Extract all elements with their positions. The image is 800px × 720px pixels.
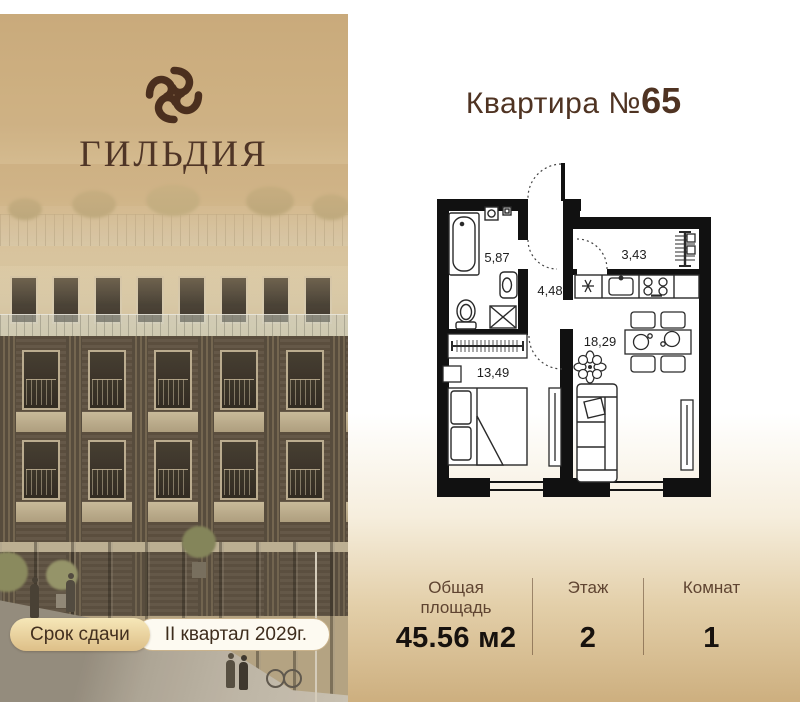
bed	[448, 388, 527, 465]
coat-rack	[675, 232, 695, 266]
sofa	[577, 384, 617, 482]
nightstand	[443, 366, 461, 382]
completion-badge-value: II квартал 2029г.	[136, 618, 330, 651]
detail-label: Общая площадь	[401, 578, 511, 618]
detail-label: Комнат	[683, 578, 740, 618]
kitchen-sink	[609, 276, 633, 295]
detail-value: 2	[580, 622, 596, 655]
shower-tray	[490, 306, 516, 328]
apartment-number: 65	[641, 80, 681, 121]
detail-value: 1	[703, 622, 719, 655]
floor-plan: 5,87 3,43 4,48 18,29 13,49	[435, 160, 711, 500]
room-area-bathroom: 5,87	[484, 250, 509, 265]
apartment-title-prefix: Квартира №	[466, 87, 641, 120]
building-photo: ГИЛЬДИЯ	[0, 14, 348, 702]
dining-table	[625, 312, 691, 372]
room-area-corridor: 4,48	[537, 283, 562, 298]
detail-total-area: Общая площадь 45.56 м2	[380, 578, 532, 655]
bathtub	[449, 213, 479, 275]
radiator	[549, 388, 561, 466]
detail-value: 45.56 м2	[396, 622, 517, 655]
apartment-card: ГИЛЬДИЯ Срок сдачи II квартал 2029г. Ква…	[0, 0, 800, 720]
completion-badge-label: Срок сдачи	[10, 618, 150, 651]
room-area-hall: 3,43	[621, 247, 646, 262]
completion-badge: Срок сдачи II квартал 2029г.	[10, 618, 330, 651]
sink-bathroom	[500, 272, 517, 298]
apartment-title: Квартира №65	[347, 80, 800, 122]
washer-icon	[485, 207, 511, 220]
plant	[574, 351, 606, 383]
detail-rooms: Комнат 1	[643, 578, 779, 655]
wardrobe	[448, 334, 527, 358]
toilet	[456, 300, 476, 329]
apartment-details: Общая площадь 45.56 м2 Этаж 2 Комнат 1	[380, 578, 780, 655]
radiator	[681, 400, 693, 470]
brand-name: ГИЛЬДИЯ	[0, 133, 348, 176]
room-area-kitchen-living: 18,29	[584, 334, 617, 349]
detail-label: Этаж	[568, 578, 609, 618]
detail-floor: Этаж 2	[532, 578, 643, 655]
room-area-bedroom: 13,49	[477, 365, 510, 380]
